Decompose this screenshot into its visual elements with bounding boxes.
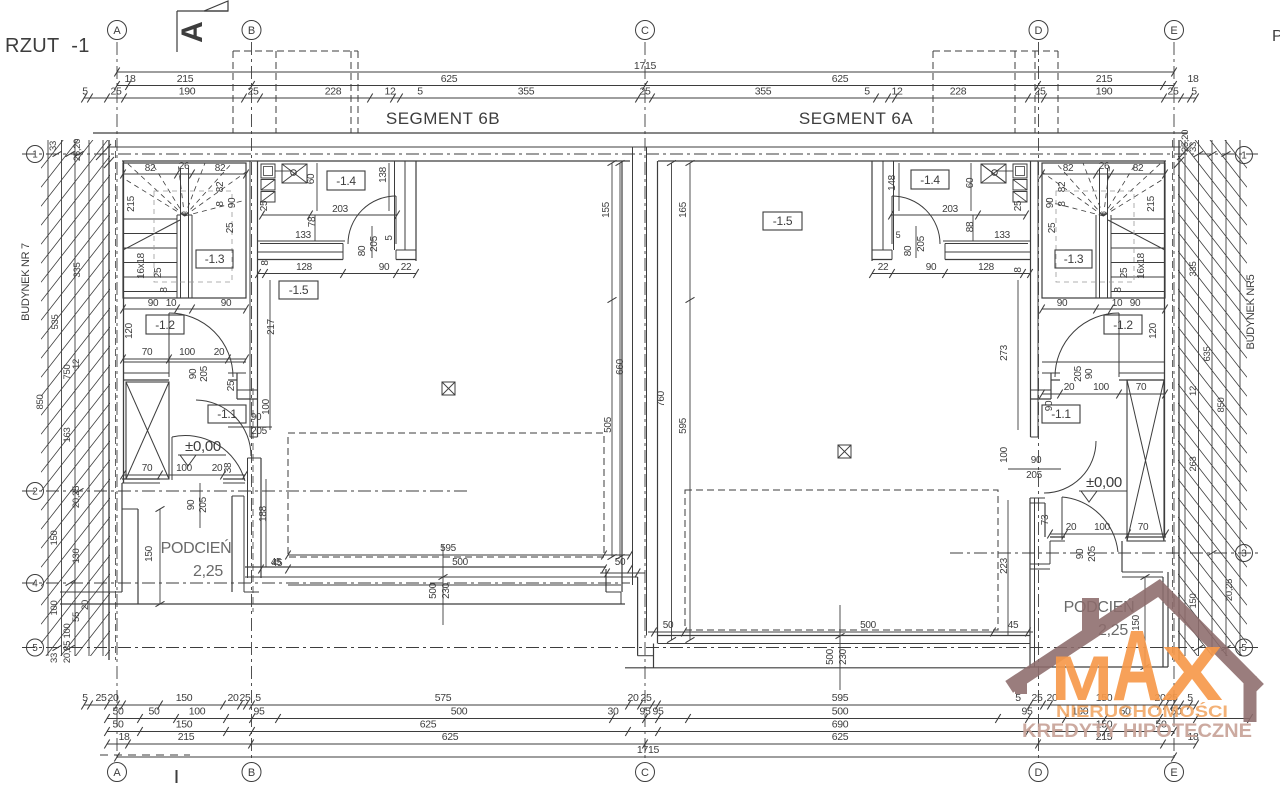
svg-text:33: 33 bbox=[49, 653, 60, 663]
svg-text:90: 90 bbox=[148, 298, 159, 309]
svg-text:1715: 1715 bbox=[634, 60, 657, 72]
svg-text:850: 850 bbox=[35, 395, 46, 410]
svg-text:-1.2: -1.2 bbox=[1113, 318, 1133, 332]
svg-text:100: 100 bbox=[176, 463, 193, 474]
svg-text:90: 90 bbox=[221, 298, 232, 309]
svg-text:205: 205 bbox=[1026, 470, 1043, 481]
svg-text:120: 120 bbox=[124, 322, 135, 339]
svg-text:20: 20 bbox=[107, 692, 119, 704]
svg-text:33: 33 bbox=[48, 141, 59, 151]
svg-text:217: 217 bbox=[266, 318, 277, 335]
svg-text:133: 133 bbox=[295, 230, 312, 241]
svg-text:26: 26 bbox=[1099, 161, 1110, 172]
svg-text:25: 25 bbox=[247, 86, 259, 98]
svg-text:90: 90 bbox=[186, 499, 197, 510]
svg-text:50: 50 bbox=[615, 557, 626, 568]
svg-text:850: 850 bbox=[1216, 398, 1227, 413]
svg-text:12: 12 bbox=[891, 86, 903, 98]
svg-text:45: 45 bbox=[271, 557, 282, 568]
svg-text:E: E bbox=[1170, 25, 1177, 37]
svg-text:95: 95 bbox=[253, 706, 265, 718]
svg-text:25: 25 bbox=[1034, 86, 1046, 98]
svg-text:95: 95 bbox=[639, 706, 651, 718]
svg-text:C: C bbox=[641, 25, 649, 37]
svg-text:E: E bbox=[1170, 767, 1177, 779]
svg-text:335: 335 bbox=[72, 263, 83, 278]
svg-text:5: 5 bbox=[1191, 86, 1197, 98]
svg-text:50: 50 bbox=[663, 620, 674, 631]
svg-text:25: 25 bbox=[110, 86, 122, 98]
svg-text:50: 50 bbox=[112, 719, 124, 731]
svg-text:95: 95 bbox=[1021, 706, 1033, 718]
svg-text:133: 133 bbox=[994, 230, 1011, 241]
svg-text:273: 273 bbox=[999, 344, 1010, 361]
svg-text:20: 20 bbox=[212, 463, 223, 474]
svg-text:5: 5 bbox=[82, 86, 88, 98]
svg-text:1715: 1715 bbox=[637, 744, 660, 756]
svg-text:-1.4: -1.4 bbox=[920, 173, 940, 187]
svg-text:215: 215 bbox=[178, 731, 195, 743]
svg-text:8: 8 bbox=[1013, 267, 1024, 273]
svg-text:-1.2: -1.2 bbox=[155, 318, 175, 332]
svg-text:215: 215 bbox=[126, 195, 137, 212]
svg-text:165: 165 bbox=[678, 201, 689, 218]
svg-text:500: 500 bbox=[825, 648, 836, 665]
svg-text:500: 500 bbox=[860, 620, 877, 631]
svg-text:8: 8 bbox=[260, 260, 271, 266]
svg-text:5: 5 bbox=[896, 230, 901, 240]
svg-text:A: A bbox=[113, 25, 121, 37]
svg-text:18: 18 bbox=[118, 731, 130, 743]
svg-text:82: 82 bbox=[145, 163, 156, 174]
svg-text:25,20: 25,20 bbox=[72, 139, 83, 161]
svg-text:130: 130 bbox=[71, 549, 82, 564]
svg-text:-1.1: -1.1 bbox=[217, 407, 237, 421]
svg-text:SEGMENT 6A: SEGMENT 6A bbox=[799, 109, 913, 128]
svg-text:205: 205 bbox=[916, 235, 927, 252]
svg-text:20,25: 20,25 bbox=[62, 641, 73, 663]
svg-text:88: 88 bbox=[965, 221, 976, 232]
svg-text:625: 625 bbox=[832, 731, 849, 743]
svg-text:90: 90 bbox=[926, 262, 937, 273]
svg-text:100: 100 bbox=[1094, 522, 1111, 533]
svg-text:100: 100 bbox=[1093, 382, 1110, 393]
svg-text:150: 150 bbox=[176, 692, 193, 704]
svg-text:80: 80 bbox=[357, 245, 368, 256]
svg-text:205: 205 bbox=[369, 235, 380, 252]
svg-text:55: 55 bbox=[71, 612, 82, 622]
svg-text:D: D bbox=[1035, 25, 1043, 37]
svg-text:5: 5 bbox=[82, 692, 88, 704]
svg-text:20,25: 20,25 bbox=[1224, 579, 1235, 601]
svg-text:22: 22 bbox=[878, 262, 889, 273]
svg-text:90: 90 bbox=[1031, 455, 1042, 466]
svg-text:5: 5 bbox=[384, 235, 395, 241]
svg-text:16x18: 16x18 bbox=[1136, 252, 1147, 278]
svg-text:12: 12 bbox=[71, 359, 82, 369]
svg-text:190: 190 bbox=[179, 86, 196, 98]
svg-text:5: 5 bbox=[32, 643, 38, 654]
svg-text:95: 95 bbox=[652, 706, 664, 718]
svg-text:120: 120 bbox=[1148, 322, 1159, 339]
svg-text:20: 20 bbox=[1066, 522, 1077, 533]
svg-text:60: 60 bbox=[965, 177, 976, 188]
svg-text:SEGMENT 6B: SEGMENT 6B bbox=[386, 109, 500, 128]
svg-text:100: 100 bbox=[179, 347, 196, 358]
svg-text:82: 82 bbox=[1057, 181, 1068, 192]
svg-text:5: 5 bbox=[417, 86, 423, 98]
svg-text:60: 60 bbox=[306, 173, 317, 184]
svg-text:-1.5: -1.5 bbox=[289, 283, 309, 297]
svg-text:690: 690 bbox=[832, 719, 849, 731]
svg-text:90: 90 bbox=[1084, 368, 1095, 379]
svg-text:82: 82 bbox=[215, 181, 226, 192]
svg-text:215: 215 bbox=[1146, 195, 1157, 212]
svg-text:NIERUCHOMOŚCI: NIERUCHOMOŚCI bbox=[1056, 702, 1228, 721]
svg-text:50: 50 bbox=[112, 706, 124, 718]
svg-text:82: 82 bbox=[1133, 163, 1144, 174]
svg-text:30: 30 bbox=[607, 706, 619, 718]
svg-text:82: 82 bbox=[215, 163, 226, 174]
svg-text:500: 500 bbox=[428, 582, 439, 599]
svg-text:50: 50 bbox=[148, 706, 160, 718]
svg-text:128: 128 bbox=[978, 262, 995, 273]
svg-text:16x18: 16x18 bbox=[136, 252, 147, 278]
svg-text:155: 155 bbox=[601, 201, 612, 218]
svg-text:12: 12 bbox=[384, 86, 396, 98]
svg-text:205: 205 bbox=[1087, 545, 1098, 562]
svg-text:1: 1 bbox=[1241, 151, 1247, 162]
svg-text:B: B bbox=[248, 767, 255, 779]
svg-text:90: 90 bbox=[188, 368, 199, 379]
svg-text:100: 100 bbox=[999, 446, 1010, 463]
svg-text:±0,00: ±0,00 bbox=[185, 438, 221, 455]
svg-text:-1.5: -1.5 bbox=[773, 214, 793, 228]
svg-text:128: 128 bbox=[296, 262, 313, 273]
svg-text:A: A bbox=[176, 21, 209, 43]
svg-text:KREDYTY HIPOTECZNE: KREDYTY HIPOTECZNE bbox=[1022, 721, 1252, 742]
svg-text:12: 12 bbox=[1188, 386, 1199, 396]
svg-text:B: B bbox=[248, 25, 255, 37]
svg-text:215: 215 bbox=[1096, 73, 1113, 85]
svg-text:205: 205 bbox=[198, 496, 209, 513]
svg-text:625: 625 bbox=[832, 73, 849, 85]
svg-text:500: 500 bbox=[451, 706, 468, 718]
svg-text:1: 1 bbox=[32, 150, 38, 161]
svg-text:70: 70 bbox=[142, 463, 153, 474]
svg-text:90: 90 bbox=[1045, 197, 1056, 208]
svg-text:205: 205 bbox=[199, 365, 210, 382]
svg-text:25: 25 bbox=[239, 692, 251, 704]
svg-text:625: 625 bbox=[420, 719, 437, 731]
svg-text:18: 18 bbox=[1187, 73, 1199, 85]
svg-text:90: 90 bbox=[1130, 298, 1141, 309]
svg-text:635: 635 bbox=[1202, 347, 1213, 362]
svg-text:8: 8 bbox=[1057, 201, 1068, 207]
svg-text:25: 25 bbox=[1167, 86, 1179, 98]
svg-text:BUDYNEK NR 7: BUDYNEK NR 7 bbox=[20, 243, 32, 321]
svg-text:4: 4 bbox=[32, 579, 38, 590]
svg-text:625: 625 bbox=[442, 731, 459, 743]
svg-text:20: 20 bbox=[227, 692, 239, 704]
svg-text:595: 595 bbox=[832, 692, 849, 704]
svg-text:150: 150 bbox=[176, 719, 193, 731]
svg-text:20: 20 bbox=[214, 347, 225, 358]
svg-text:148: 148 bbox=[887, 174, 898, 191]
svg-text:20,25: 20,25 bbox=[71, 486, 82, 508]
svg-text:500: 500 bbox=[452, 557, 469, 568]
svg-text:215: 215 bbox=[177, 73, 194, 85]
svg-text:25: 25 bbox=[226, 380, 237, 391]
svg-text:163: 163 bbox=[62, 428, 73, 443]
svg-text:2: 2 bbox=[32, 487, 38, 498]
svg-text:25: 25 bbox=[225, 222, 236, 233]
svg-text:138: 138 bbox=[378, 166, 389, 183]
svg-text:25: 25 bbox=[259, 200, 270, 211]
svg-text:2,25: 2,25 bbox=[193, 563, 223, 580]
svg-text:70: 70 bbox=[1138, 522, 1149, 533]
svg-text:BUDYNEK NR5: BUDYNEK NR5 bbox=[1245, 274, 1257, 349]
svg-text:10: 10 bbox=[1112, 298, 1123, 309]
svg-text:A: A bbox=[113, 767, 121, 779]
svg-text:25: 25 bbox=[1031, 692, 1043, 704]
svg-text:5: 5 bbox=[1241, 643, 1247, 654]
svg-text:70: 70 bbox=[1136, 382, 1147, 393]
svg-text:760: 760 bbox=[656, 390, 667, 407]
svg-text:70: 70 bbox=[142, 347, 153, 358]
svg-text:90: 90 bbox=[1044, 400, 1055, 411]
svg-text:82: 82 bbox=[1063, 163, 1074, 174]
svg-text:38: 38 bbox=[223, 462, 234, 473]
svg-text:RZUT -1: RZUT -1 bbox=[5, 35, 90, 57]
svg-text:22: 22 bbox=[401, 262, 412, 273]
svg-text:228: 228 bbox=[950, 86, 967, 98]
svg-text:25: 25 bbox=[640, 692, 652, 704]
svg-text:230: 230 bbox=[838, 648, 849, 665]
svg-text:8: 8 bbox=[215, 201, 226, 207]
svg-text:100: 100 bbox=[62, 624, 73, 639]
svg-text:10: 10 bbox=[166, 298, 177, 309]
svg-text:90: 90 bbox=[379, 262, 390, 273]
svg-text:575: 575 bbox=[435, 692, 452, 704]
svg-text:203: 203 bbox=[332, 204, 349, 215]
svg-text:190: 190 bbox=[1096, 86, 1113, 98]
svg-text:535: 535 bbox=[50, 315, 61, 330]
svg-text:PODCIEŃ: PODCIEŃ bbox=[161, 538, 232, 557]
svg-text:20: 20 bbox=[80, 600, 91, 610]
svg-text:45: 45 bbox=[1008, 620, 1019, 631]
svg-text:3: 3 bbox=[1241, 549, 1247, 560]
svg-text:335: 335 bbox=[1188, 262, 1199, 277]
svg-text:188: 188 bbox=[258, 505, 269, 522]
svg-text:355: 355 bbox=[518, 86, 535, 98]
svg-text:263: 263 bbox=[1188, 457, 1199, 472]
svg-text:±0,00: ±0,00 bbox=[1086, 474, 1122, 491]
svg-text:205: 205 bbox=[1073, 365, 1084, 382]
svg-text:25: 25 bbox=[639, 86, 651, 98]
svg-text:5: 5 bbox=[864, 86, 870, 98]
svg-text:5: 5 bbox=[255, 692, 261, 704]
svg-text:205: 205 bbox=[251, 426, 268, 437]
svg-text:20: 20 bbox=[1064, 382, 1075, 393]
svg-text:C: C bbox=[641, 767, 649, 779]
svg-text:90: 90 bbox=[1075, 548, 1086, 559]
svg-text:20: 20 bbox=[627, 692, 639, 704]
svg-text:25: 25 bbox=[153, 267, 164, 278]
svg-text:230: 230 bbox=[441, 582, 452, 599]
svg-text:D: D bbox=[1035, 767, 1043, 779]
svg-text:500: 500 bbox=[832, 706, 849, 718]
svg-text:505: 505 bbox=[603, 416, 614, 433]
svg-text:150: 150 bbox=[49, 531, 60, 546]
svg-text:-1.4: -1.4 bbox=[336, 174, 356, 188]
svg-text:-1.3: -1.3 bbox=[205, 252, 225, 266]
svg-text:150: 150 bbox=[1188, 594, 1199, 609]
svg-text:26: 26 bbox=[179, 161, 190, 172]
svg-text:355: 355 bbox=[755, 86, 772, 98]
svg-text:80: 80 bbox=[903, 245, 914, 256]
svg-text:228: 228 bbox=[325, 86, 342, 98]
svg-text:-1.3: -1.3 bbox=[1064, 252, 1084, 266]
svg-text:25: 25 bbox=[1047, 222, 1058, 233]
svg-text:203: 203 bbox=[942, 204, 959, 215]
svg-text:90: 90 bbox=[227, 197, 238, 208]
svg-text:25: 25 bbox=[1119, 267, 1130, 278]
svg-text:100: 100 bbox=[49, 601, 60, 616]
svg-text:595: 595 bbox=[678, 417, 689, 434]
svg-text:625: 625 bbox=[441, 73, 458, 85]
svg-text:90: 90 bbox=[1057, 298, 1068, 309]
svg-text:100: 100 bbox=[189, 706, 206, 718]
svg-text:150: 150 bbox=[144, 545, 155, 562]
svg-text:660: 660 bbox=[615, 358, 626, 375]
svg-text:25: 25 bbox=[95, 692, 107, 704]
svg-text:P: P bbox=[1272, 28, 1280, 45]
svg-text:18: 18 bbox=[124, 73, 136, 85]
svg-text:8: 8 bbox=[159, 287, 170, 293]
svg-text:8: 8 bbox=[1113, 287, 1124, 293]
svg-text:25: 25 bbox=[1013, 200, 1024, 211]
